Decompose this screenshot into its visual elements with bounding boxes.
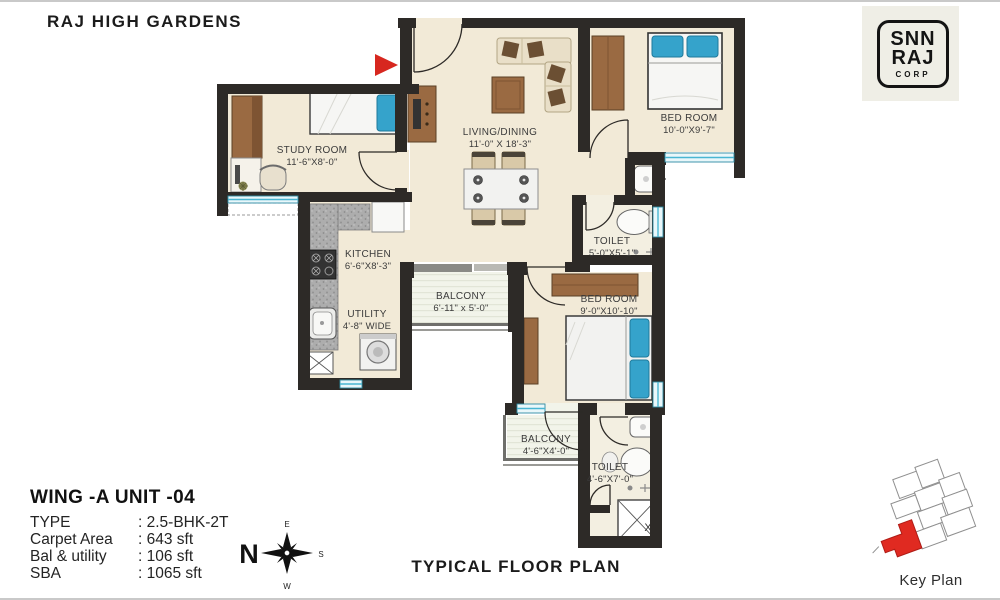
unit-heading: WING -A UNIT -04 [30,487,228,509]
info-row-type: TYPE : 2.5-BHK-2T [30,514,228,531]
key-plan-label: Key Plan [899,572,962,589]
room-label-bedroom1: BED ROOM 10'-0"X9'-7" [661,112,718,137]
compass-east-label: E [284,520,289,529]
compass-south-label: S [318,550,323,559]
room-label-study: STUDY ROOM 11'-6"X8'-0" [277,144,348,169]
room-label-toilet2: TOILET 4'-6"X7'-0" [587,461,633,486]
room-label-kitchen: KITCHEN 6'-6"X8'-3" [345,248,391,273]
entrance-arrow-icon [375,54,398,76]
key-plan-map [850,453,980,565]
unit-info-block: WING -A UNIT -04 TYPE : 2.5-BHK-2T Carpe… [30,487,228,582]
compass-rose: N E S W [239,520,323,591]
room-label-utility: UTILITY 4'-8" WIDE [343,308,391,333]
plan-title: TYPICAL FLOOR PLAN [411,557,620,577]
info-row-balcony: Bal & utility : 106 sft [30,548,228,565]
room-label-toilet1: TOILET 5'-0"X5'-1" [589,235,635,260]
room-label-living: LIVING/DINING 11'-0" X 18'-3" [463,126,537,151]
floor-plan-page: { "header": { "title": "RAJ HIGH GARDENS… [0,0,1000,600]
room-label-bedroom2: BED ROOM 9'-0"X10'-10" [580,293,637,318]
compass-north-label: N [239,539,259,569]
bedroom1-furniture [592,33,722,110]
room-label-balcony1: BALCONY 6'-11" x 5'-0" [433,290,488,315]
info-row-carpet: Carpet Area : 643 sft [30,531,228,548]
compass-west-label: W [283,582,291,591]
info-row-sba: SBA : 1065 sft [30,565,228,582]
room-label-balcony2: BALCONY 4'-6"X4'-0" [521,433,571,458]
